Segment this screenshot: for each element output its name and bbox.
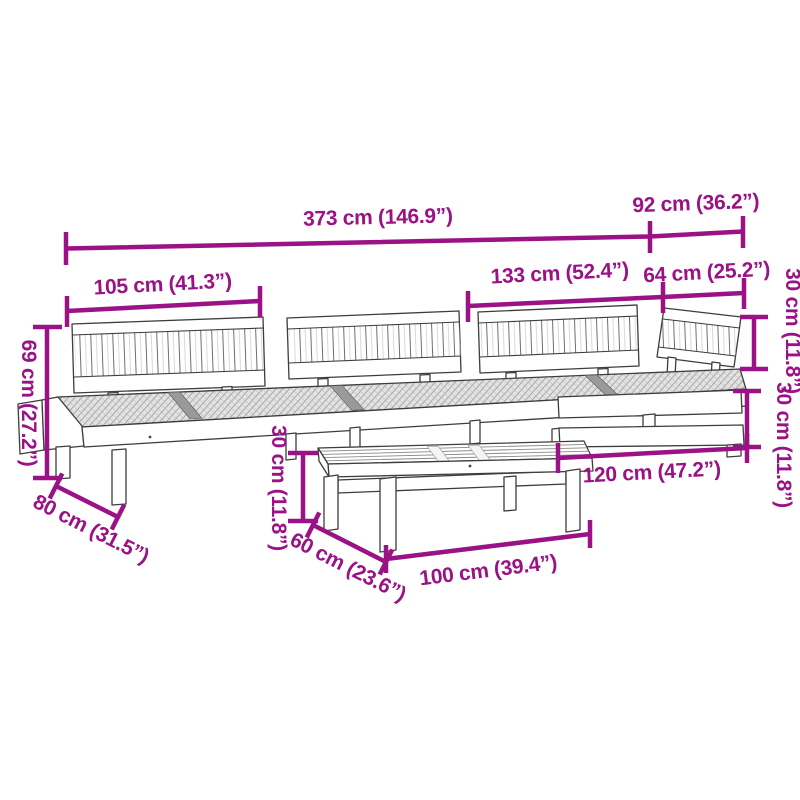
dim-sofa-depth: 80 cm (31.5”) <box>29 474 152 569</box>
dim-label-backrest-height: 30 cm (11.8”) <box>781 268 800 394</box>
dim-table-width: 100 cm (39.4”) <box>386 520 590 590</box>
dim-label-corner-backrest-width: 64 cm (25.2”) <box>643 258 771 288</box>
table-leg <box>504 476 516 511</box>
dim-label-left-backrest-width: 105 cm (41.3”) <box>93 269 232 299</box>
table-leg <box>324 475 338 531</box>
furniture-dimension-diagram: 373 cm (146.9”) 92 cm (36.2”) 105 cm (41… <box>0 0 800 800</box>
dim-label-table-height: 30 cm (11.8”) <box>267 425 290 551</box>
dim-label-table-width: 100 cm (39.4”) <box>418 551 558 591</box>
dim-label-seat-height: 30 cm (11.8”) <box>772 382 795 508</box>
diagram-canvas: 373 cm (146.9”) 92 cm (36.2”) 105 cm (41… <box>0 0 800 800</box>
coffee-table <box>318 441 593 552</box>
sofa-leg <box>470 420 480 444</box>
dim-backrest-height: 30 cm (11.8”) <box>740 268 800 394</box>
table-leg <box>566 469 580 532</box>
dim-label-overall-width: 373 cm (146.9”) <box>303 204 453 230</box>
sofa-set-drawing <box>18 305 748 552</box>
dim-label-corner-seat-width: 120 cm (47.2”) <box>582 457 721 487</box>
dim-overall-width: 373 cm (146.9”) 92 cm (36.2”) <box>66 190 760 265</box>
dim-label-wide-backrest-width: 133 cm (52.4”) <box>490 258 629 288</box>
table-leg <box>380 477 396 552</box>
sofa-leg <box>112 449 126 505</box>
dim-label-right-section-width: 92 cm (36.2”) <box>632 190 760 217</box>
dim-label-total-height: 69 cm (27.2”) <box>17 340 40 467</box>
